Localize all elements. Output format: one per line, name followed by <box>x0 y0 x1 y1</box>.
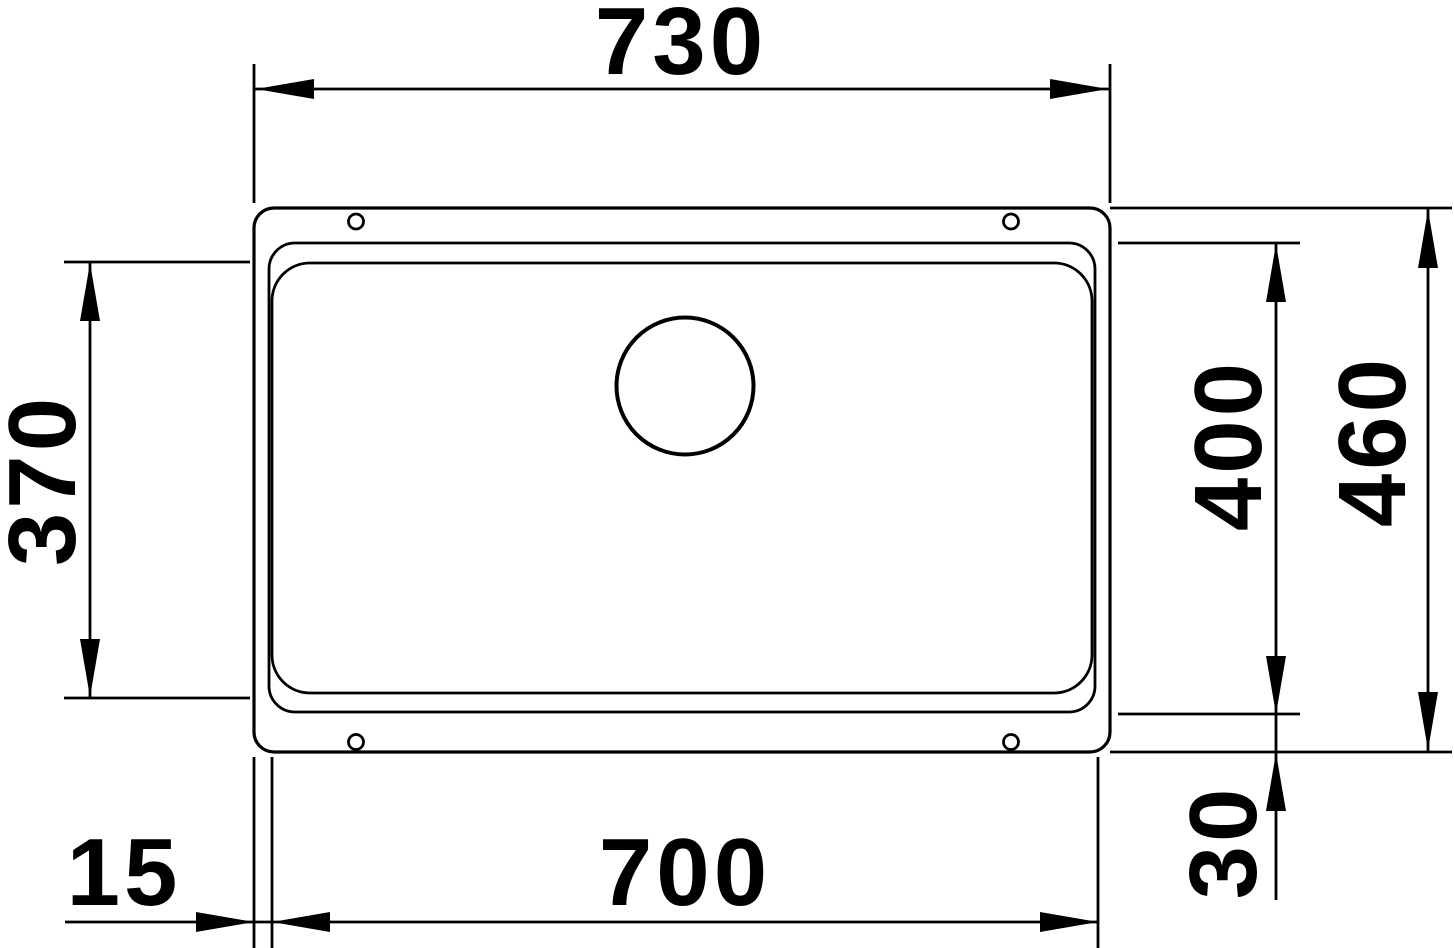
arrowhead-up <box>1418 210 1438 268</box>
arrowhead-right-outside <box>196 912 254 932</box>
dimension-label-460: 460 <box>1319 355 1426 527</box>
dimension-outer-width-730: 730 <box>254 0 1110 203</box>
basin-edge-inner <box>272 263 1092 693</box>
sink-dimension-drawing: 730 370 15 700 400 30 <box>0 0 1454 948</box>
dimension-label-30: 30 <box>1170 785 1277 900</box>
sink-outer-outline <box>254 208 1110 752</box>
arrowhead-up <box>1266 244 1286 302</box>
mounting-hole-top-left <box>349 214 364 229</box>
technical-drawing-canvas: 730 370 15 700 400 30 <box>0 0 1454 948</box>
mounting-hole-bottom-right <box>1004 735 1019 750</box>
dimension-label-15: 15 <box>67 819 182 926</box>
arrowhead-up <box>80 263 100 321</box>
dimension-bottom-15-700: 15 700 <box>65 757 1098 948</box>
basin-edge-outer <box>269 243 1095 712</box>
arrowhead-right <box>1040 912 1098 932</box>
dimension-label-700: 700 <box>599 819 771 926</box>
dimension-inner-height-370: 370 <box>0 262 250 698</box>
mounting-hole-bottom-left <box>349 735 364 750</box>
arrowhead-left <box>256 79 314 99</box>
arrowhead-down <box>80 639 100 697</box>
arrowhead-down <box>1266 656 1286 714</box>
mounting-hole-top-right <box>1004 214 1019 229</box>
dimension-label-730: 730 <box>595 0 767 95</box>
arrowhead-down <box>1418 692 1438 750</box>
arrowhead-left-outside <box>272 912 330 932</box>
dimension-right-400-30: 400 30 <box>1118 243 1300 900</box>
sink-top-view <box>254 208 1110 752</box>
dimension-label-370: 370 <box>0 394 96 566</box>
drain-hole-circle <box>617 318 754 455</box>
arrowhead-right <box>1050 79 1108 99</box>
dimension-label-400: 400 <box>1175 359 1282 531</box>
